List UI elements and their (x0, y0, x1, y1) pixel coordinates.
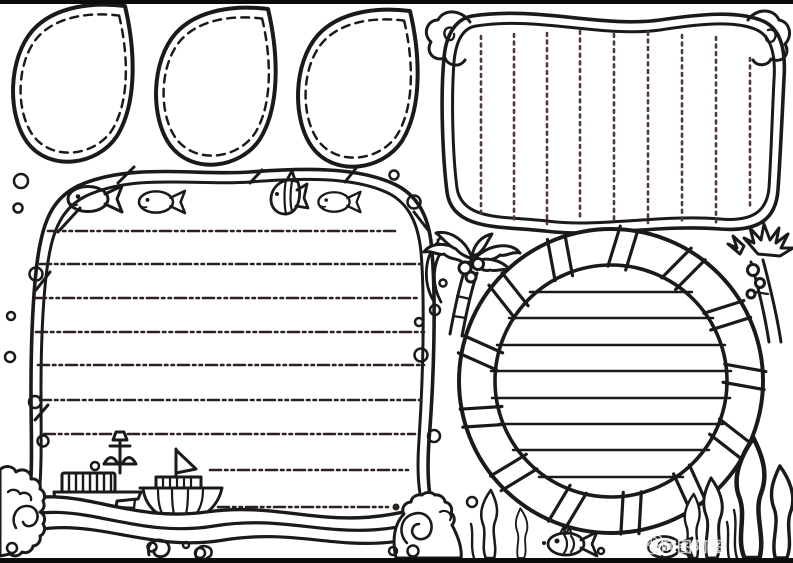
coral-icon (394, 493, 461, 558)
vertical-writing-panel (426, 11, 789, 233)
writing-lines (35, 231, 428, 507)
panel-border-outer (442, 13, 784, 233)
fish-icon (318, 192, 360, 212)
line-end-dot (393, 504, 400, 511)
fish-icon (68, 186, 122, 212)
seaweed-icon (516, 508, 527, 558)
teardrop-shapes (13, 5, 418, 167)
angelfish-icon (271, 171, 308, 214)
teardrop-shape-3 (298, 10, 418, 167)
seaweed-icon (685, 494, 700, 558)
left-writing-panel (0, 167, 448, 558)
teardrop-shape-1 (13, 5, 133, 162)
seaweed-icon (737, 438, 765, 558)
seaweed-icon (481, 490, 497, 558)
top-border (0, 0, 793, 4)
fish-icons (68, 171, 361, 214)
rope-frame-border (29, 167, 434, 505)
vertical-writing-lines (481, 31, 750, 227)
template-canvas: @阿图阿图 (0, 0, 793, 563)
bottom-border (0, 558, 793, 563)
teardrop-shape-2 (156, 8, 276, 165)
rope-twist-marks (35, 167, 428, 420)
seaweed-icon (771, 466, 792, 558)
line-art (0, 0, 793, 563)
life-ring-panel (457, 225, 767, 536)
seaweed-icon (704, 478, 723, 558)
ring-inner (495, 265, 727, 497)
fish-icon (139, 191, 185, 213)
splash-icon (0, 466, 45, 556)
